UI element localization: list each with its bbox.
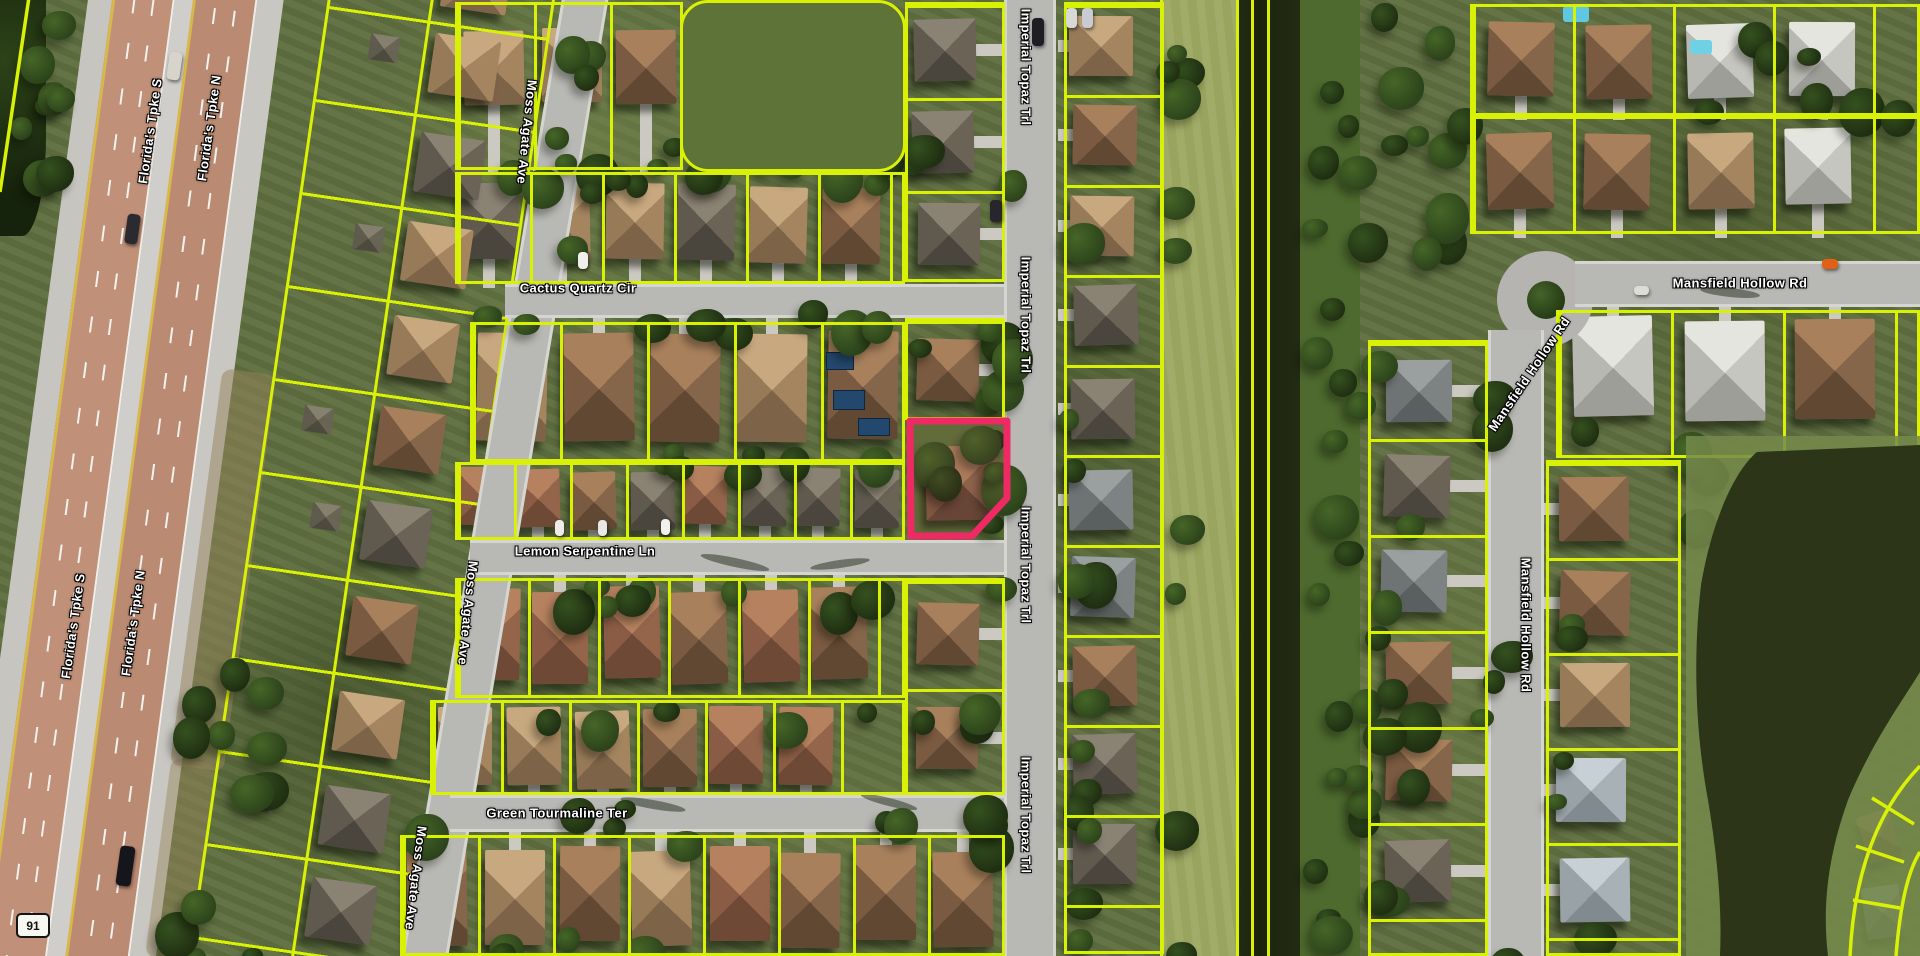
tree	[1338, 115, 1359, 137]
car	[1082, 8, 1093, 28]
tree	[36, 156, 74, 191]
tree	[1303, 859, 1327, 884]
tree	[1425, 193, 1469, 244]
parcel-line	[1251, 0, 1254, 956]
car	[1634, 286, 1649, 295]
tree	[1325, 701, 1353, 732]
tree	[1170, 515, 1205, 544]
house-roof	[1861, 884, 1906, 941]
tree	[1381, 135, 1409, 156]
pond-parcel	[680, 0, 906, 172]
lake-shore-grass	[1686, 436, 1920, 956]
parcel-line	[1236, 0, 1239, 956]
parcel-block	[430, 700, 905, 795]
highlighted-parcel[interactable]	[910, 421, 1007, 536]
lake	[1696, 445, 1920, 956]
street-label-green-tourmaline-ter: Green Tourmaline Ter	[486, 806, 627, 821]
tree	[247, 732, 287, 766]
parcel-block	[1470, 116, 1920, 234]
car	[990, 200, 1002, 222]
tree	[1378, 67, 1424, 110]
car	[598, 520, 607, 536]
parcel-line	[1267, 0, 1270, 956]
parcel-block	[1368, 340, 1488, 956]
parcel-block	[905, 318, 1005, 420]
tree	[20, 46, 54, 84]
parcel-block	[455, 462, 905, 540]
tree	[1678, 509, 1718, 549]
street-label-cactus-quartz-cir: Cactus Quartz Cir	[520, 281, 637, 296]
tree	[42, 11, 76, 40]
parcel-block	[455, 172, 905, 284]
street-label-lemon-serpentine-ln: Lemon Serpentine Ln	[515, 544, 656, 559]
street-label-mansfield-hollow-rd: Mansfield Hollow Rd	[1673, 276, 1808, 291]
parcel-block	[905, 2, 1005, 282]
tree	[47, 87, 74, 112]
street-label-imperial-topaz-trl: Imperial Topaz Trl	[1019, 9, 1034, 126]
car	[1032, 18, 1044, 46]
tree	[1406, 126, 1429, 147]
car	[661, 519, 670, 535]
parcel-block	[455, 578, 905, 698]
car	[578, 252, 588, 269]
parcel-block	[1546, 460, 1681, 956]
parcel-block	[470, 322, 905, 462]
car	[1822, 259, 1838, 269]
parcel-block	[1470, 4, 1920, 116]
parcel-block	[905, 578, 1005, 795]
parcel-block	[400, 835, 1005, 956]
tree	[1371, 3, 1398, 32]
house-roof	[1855, 808, 1902, 864]
parcel-block	[1064, 2, 1164, 954]
car	[1066, 8, 1077, 28]
tree	[1166, 942, 1196, 956]
tree	[1165, 583, 1187, 604]
car	[555, 520, 564, 536]
parcel-block	[455, 2, 683, 170]
tree	[1302, 219, 1327, 238]
highway-shield-91: 91	[16, 913, 50, 938]
street-label-imperial-topaz-trl: Imperial Topaz Trl	[1019, 507, 1034, 624]
street-label-imperial-topaz-trl: Imperial Topaz Trl	[1019, 757, 1034, 874]
street-label-imperial-topaz-trl: Imperial Topaz Trl	[1019, 257, 1034, 374]
tree	[1412, 237, 1442, 271]
tree	[208, 721, 236, 749]
tree	[1348, 223, 1388, 262]
street-label-mansfield-hollow-rd: Mansfield Hollow Rd	[1519, 558, 1534, 693]
tree	[1425, 26, 1456, 61]
tree	[1339, 156, 1377, 190]
map-canvas[interactable]: Florida's Tpke S Florida's Tpke N Florid…	[0, 0, 1920, 956]
parcel-block	[1556, 310, 1920, 458]
